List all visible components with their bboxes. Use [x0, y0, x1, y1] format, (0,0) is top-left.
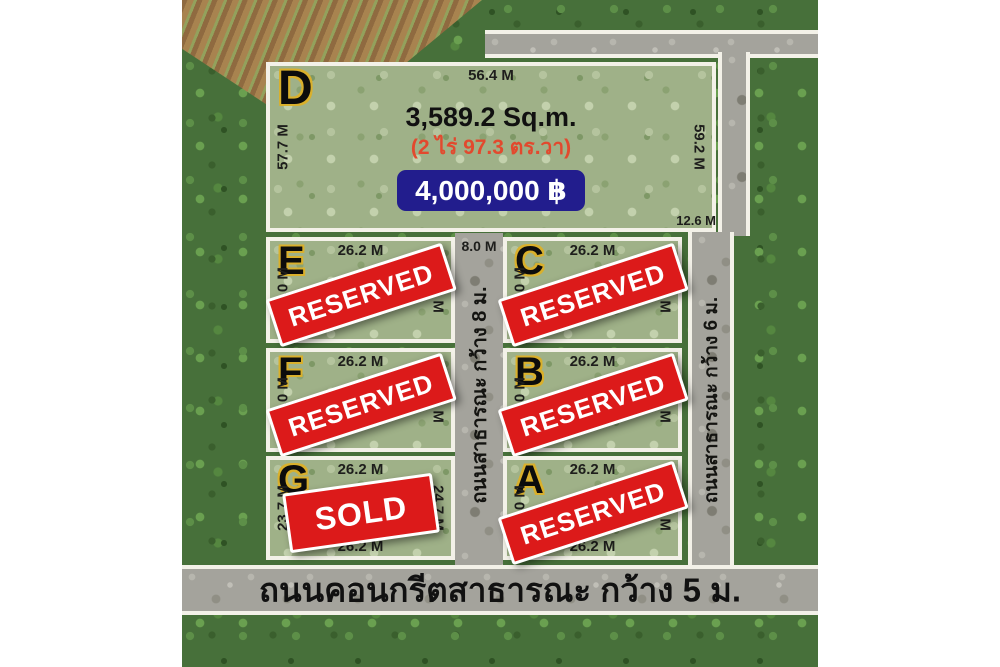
plot-b-top-measure: 26.2 M	[570, 353, 616, 370]
plot-b: B 26.2 M 24.0 M 24.0 M RESERVED	[503, 348, 682, 452]
road-bottom-name: ถนนคอนกรีตสาธารณะ กว้าง 5 ม.	[259, 564, 741, 617]
plot-g-top-measure: 26.2 M	[338, 461, 384, 478]
plot-d-area-sqm: 3,589.2 Sq.m.	[270, 102, 712, 133]
road-middle-name: ถนนสาธารณะ กว้าง 8 ม.	[463, 286, 495, 503]
plot-d: D 56.4 M 57.7 M 59.2 M 12.6 M 3,589.2 Sq…	[266, 62, 716, 232]
plot-e-top-measure: 26.2 M	[338, 242, 384, 259]
plot-f: F 26.2 M 24.0 M 24.0 M RESERVED	[266, 348, 455, 452]
road-bottom: ถนนคอนกรีตสาธารณะ กว้าง 5 ม.	[182, 565, 818, 615]
aerial-photo: ถนนสาธารณะ กว้าง 6 ม. 8.0 M ถนนสาธารณะ ก…	[182, 0, 818, 667]
road-top	[485, 30, 818, 58]
plot-e: E 26.2 M 24.0 M 24.0 M RESERVED	[266, 237, 455, 343]
plot-d-price-badge: 4,000,000 ฿	[397, 170, 585, 211]
plot-d-top-measure: 56.4 M	[468, 67, 514, 84]
plot-a-top-measure: 26.2 M	[570, 461, 616, 478]
plot-c-top-measure: 26.2 M	[570, 242, 616, 259]
plot-f-top-measure: 26.2 M	[338, 353, 384, 370]
plot-c: C 26.2 M 24.0 M 24.0 M RESERVED	[503, 237, 682, 343]
plot-g: G 26.2 M 23.7 M 24.7 M 26.2 M SOLD	[266, 456, 455, 560]
road-right-upper	[718, 52, 750, 236]
plot-d-info: 3,589.2 Sq.m. (2 ไร่ 97.3 ตร.วา) 4,000,0…	[270, 102, 712, 211]
plot-a: A 26.2 M 25.0 M 26.1 M 26.2 M RESERVED	[503, 456, 682, 560]
road-middle-width: 8.0 M	[461, 238, 496, 254]
plot-d-area-thai: (2 ไร่ 97.3 ตร.วา)	[270, 131, 712, 164]
plot-d-bottomright-measure: 12.6 M	[676, 213, 716, 228]
road-right-name: ถนนสาธารณะ กว้าง 6 ม.	[696, 297, 726, 503]
land-plot-layout: ถนนสาธารณะ กว้าง 6 ม. 8.0 M ถนนสาธารณะ ก…	[0, 0, 1000, 667]
